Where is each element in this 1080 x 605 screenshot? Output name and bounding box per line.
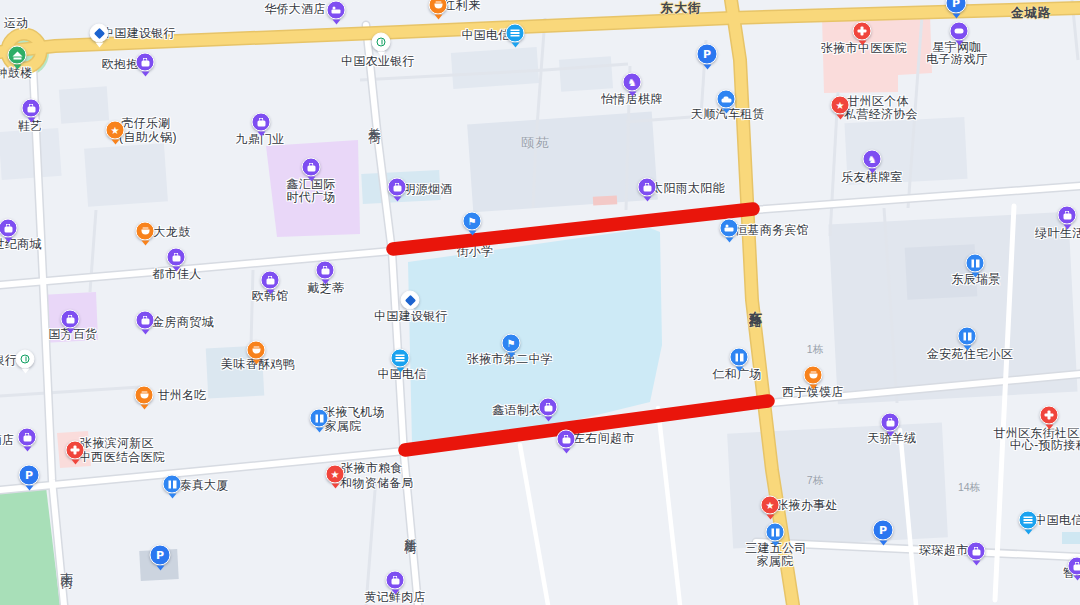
building-icon: [971, 259, 979, 267]
food-bowl-icon: [809, 374, 817, 379]
bag-icon: [141, 318, 149, 324]
food-bowl-icon: [140, 394, 148, 399]
food-bowl-icon: [252, 349, 260, 354]
bag-icon: [393, 185, 401, 191]
taizhen-tower-marker[interactable]: [163, 475, 182, 494]
tianjiao-cashmere-marker[interactable]: [881, 413, 900, 432]
building-icon: [168, 480, 176, 488]
yiqingju-mahjong-marker[interactable]: ♞: [623, 73, 642, 92]
sanjianwu-family-compound-marker[interactable]: [766, 523, 785, 542]
huangji-meat-shop-marker[interactable]: [386, 571, 405, 590]
daizhidi-marker[interactable]: [316, 261, 335, 280]
bag-icon: [266, 278, 274, 284]
parking-bottom-right[interactable]: P: [873, 520, 894, 541]
bag-icon: [562, 437, 570, 443]
parking-top-right[interactable]: P: [946, 0, 967, 14]
xining-momo-shop-marker[interactable]: [804, 366, 823, 385]
ou-baobao-marker[interactable]: [136, 53, 155, 72]
bag-icon: [27, 106, 35, 112]
ouhan-guan-marker[interactable]: [261, 271, 280, 290]
leyou-chess-room-marker[interactable]: ♞: [863, 150, 882, 169]
parking-icon: P: [156, 550, 164, 561]
jinanyuan-residence-marker[interactable]: [958, 327, 977, 346]
xinhui-plaza-marker[interactable]: [302, 158, 321, 177]
xieyi-shoes-marker[interactable]: [22, 99, 41, 118]
chess-knight-icon: ♞: [868, 154, 877, 164]
food-bowl-icon: [434, 4, 442, 9]
star-icon: ★: [766, 500, 775, 510]
red-cross-icon: [858, 27, 867, 36]
bank-fragment-left-marker[interactable]: [16, 350, 35, 369]
zhangye-no2-middle-school-marker[interactable]: ⚑: [502, 334, 521, 353]
abc-bank-marker[interactable]: [372, 33, 391, 52]
jinfang-trade-city-marker[interactable]: [136, 311, 155, 330]
zhangye-office-marker[interactable]: ★: [761, 496, 780, 515]
bed-icon: [332, 10, 341, 14]
bag-icon: [544, 405, 552, 411]
school-flag-icon: ⚑: [468, 216, 477, 226]
bed-icon: [725, 228, 734, 232]
bag-icon: [1073, 564, 1080, 570]
telecom-icon: [511, 30, 520, 37]
cart-icon: [1063, 213, 1071, 219]
hengji-hotel-marker[interactable]: [720, 219, 739, 238]
star-icon: ★: [836, 100, 845, 110]
china-telecom-mid-marker[interactable]: [391, 349, 410, 368]
bag-icon: [257, 120, 265, 126]
bag-icon: [307, 165, 315, 171]
zuoyoujian-supermarket-marker[interactable]: [557, 430, 576, 449]
bag-icon: [886, 420, 894, 426]
bag-icon: [321, 268, 329, 274]
map-viewport[interactable]: 运动钟鼓楼中国建设银行华侨大酒店红利来中国电信欧抱抱中国农业银行鞋艺壳仔乐涮(自…: [0, 0, 1080, 605]
binhe-hospital-marker[interactable]: [66, 441, 85, 460]
guofang-department-store-marker[interactable]: [61, 310, 80, 329]
ccb-bank-north-marker[interactable]: [90, 24, 109, 43]
building-icon: [963, 332, 971, 340]
taiyangyu-solar-marker[interactable]: [638, 178, 657, 197]
mingyuan-tobacco-marker[interactable]: [388, 178, 407, 197]
pagoda-icon: [12, 52, 22, 57]
parking-icon: P: [879, 525, 887, 536]
bag-icon: [66, 317, 74, 323]
shiji-mall-marker[interactable]: [0, 219, 18, 238]
private-economy-association-marker[interactable]: ★: [831, 96, 850, 115]
cart-icon: [4, 226, 12, 232]
huaqiao-hotel-marker[interactable]: [327, 1, 346, 20]
bag-icon: [23, 435, 31, 441]
parking-icon: P: [952, 0, 960, 9]
parking-icon: P: [703, 49, 711, 60]
poi-layer: ★♞★♞⚑⚑★★PPPPP: [0, 0, 1080, 605]
cart-icon: [972, 549, 980, 555]
parking-icon: P: [25, 470, 33, 481]
meiwei-chicken-duck-marker[interactable]: [247, 341, 266, 360]
school-flag-icon: ⚑: [507, 338, 516, 348]
jiuding-doors-marker[interactable]: [252, 113, 271, 132]
telecom-icon: [1024, 517, 1033, 524]
bag-icon: [172, 255, 180, 261]
chess-knight-icon: ♞: [628, 77, 637, 87]
ganzhou-snacks-marker[interactable]: [135, 386, 154, 405]
ccb-bank-mid-marker[interactable]: [401, 291, 420, 310]
honglilai-marker[interactable]: [429, 0, 448, 15]
xingyu-netcafe-marker[interactable]: [950, 22, 969, 41]
ccb-bank-icon: [93, 27, 104, 38]
xinyu-garment-marker[interactable]: [539, 398, 558, 417]
dalonggu-marker[interactable]: [136, 222, 155, 241]
building-icon: [735, 353, 743, 361]
parking-top-center[interactable]: P: [697, 44, 718, 65]
grain-reserve-bureau-marker[interactable]: ★: [326, 465, 345, 484]
building-icon: [771, 528, 779, 536]
red-cross-icon: [1045, 411, 1054, 420]
lvye-life-supermarket-marker[interactable]: [1058, 206, 1077, 225]
airport-family-compound-marker[interactable]: [310, 409, 329, 428]
ccb-bank-icon: [404, 294, 415, 305]
star-icon: ★: [331, 469, 340, 479]
dongjie-community-clinic-marker[interactable]: [1040, 406, 1059, 425]
car-icon: [721, 99, 731, 103]
china-telecom-southeast-marker[interactable]: [1019, 511, 1038, 530]
zhi-fragment-marker[interactable]: [1068, 557, 1080, 576]
bell-drum-tower-marker[interactable]: [8, 46, 27, 65]
school-fragment-marker[interactable]: ⚑: [463, 212, 482, 231]
dongchen-ruijing-marker[interactable]: [966, 254, 985, 273]
food-bowl-icon: [141, 230, 149, 235]
chenchen-supermarket-marker[interactable]: [967, 542, 986, 561]
bag-icon: [391, 578, 399, 584]
shop-fragment-left-marker[interactable]: [18, 428, 37, 447]
renhe-plaza-marker[interactable]: [730, 348, 749, 367]
building-icon: [315, 414, 323, 422]
abc-bank-icon: [377, 38, 386, 47]
game-icon: [955, 29, 964, 34]
kezai-hotpot-marker[interactable]: ★: [106, 121, 125, 140]
parking-bottom-left[interactable]: P: [150, 545, 171, 566]
bag-icon: [141, 60, 149, 66]
red-cross-icon: [71, 446, 80, 455]
bag-icon: [643, 185, 651, 191]
china-telecom-north-marker[interactable]: [506, 24, 525, 43]
zhangye-tcm-hospital-marker[interactable]: [853, 22, 872, 41]
parking-left[interactable]: P: [19, 465, 40, 486]
abc-bank-icon: [21, 355, 30, 364]
star-icon: ★: [111, 125, 120, 135]
dushi-jiaren-marker[interactable]: [167, 248, 186, 267]
tianshun-car-rental-marker[interactable]: [717, 90, 736, 109]
telecom-icon: [396, 355, 405, 362]
